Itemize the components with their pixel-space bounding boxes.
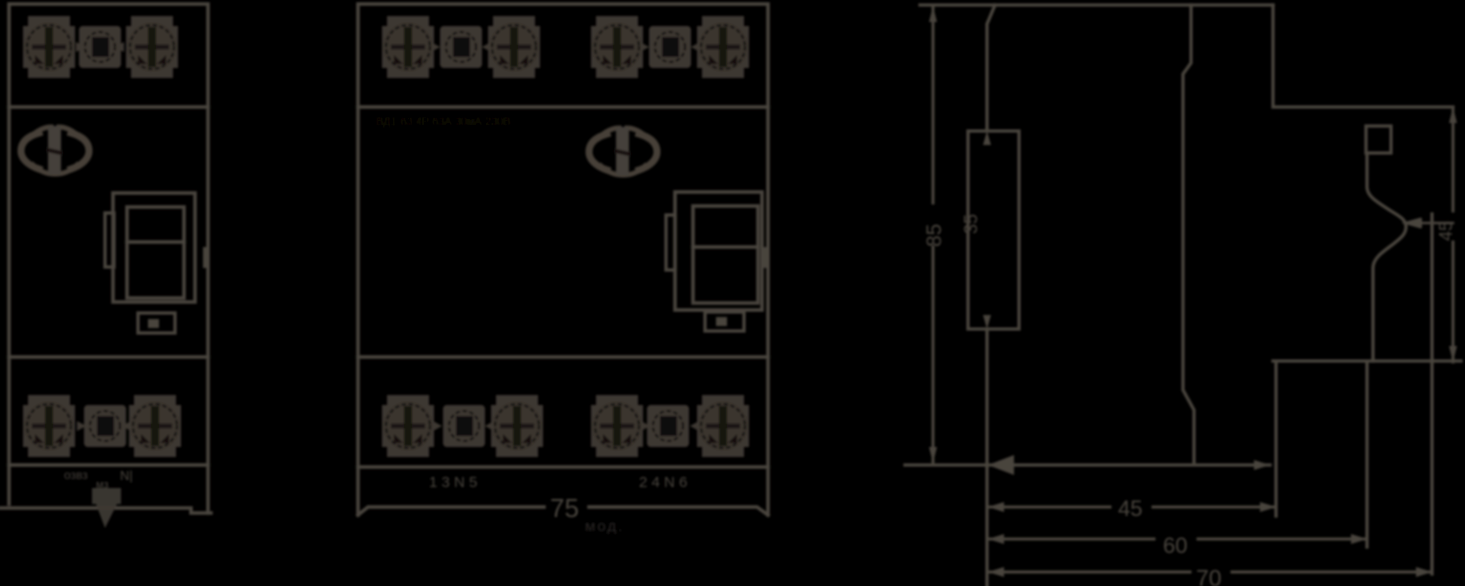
- svg-text:мод.: мод.: [585, 518, 624, 535]
- svg-text:45: 45: [1118, 496, 1142, 521]
- svg-text:ВД1-63 4Р 63А 30мА 230В: ВД1-63 4Р 63А 30мА 230В: [376, 116, 511, 128]
- svg-text:60: 60: [1163, 533, 1187, 558]
- svg-text:1 3 N 5: 1 3 N 5: [429, 474, 477, 491]
- svg-text:озвз: озвз: [64, 468, 88, 482]
- svg-text:75: 75: [550, 493, 579, 523]
- svg-text:2 4 N 6: 2 4 N 6: [639, 474, 687, 491]
- svg-text:35: 35: [961, 214, 981, 234]
- svg-text:70: 70: [1196, 565, 1222, 586]
- svg-text:85: 85: [923, 224, 946, 247]
- svg-text:N|: N|: [120, 468, 133, 483]
